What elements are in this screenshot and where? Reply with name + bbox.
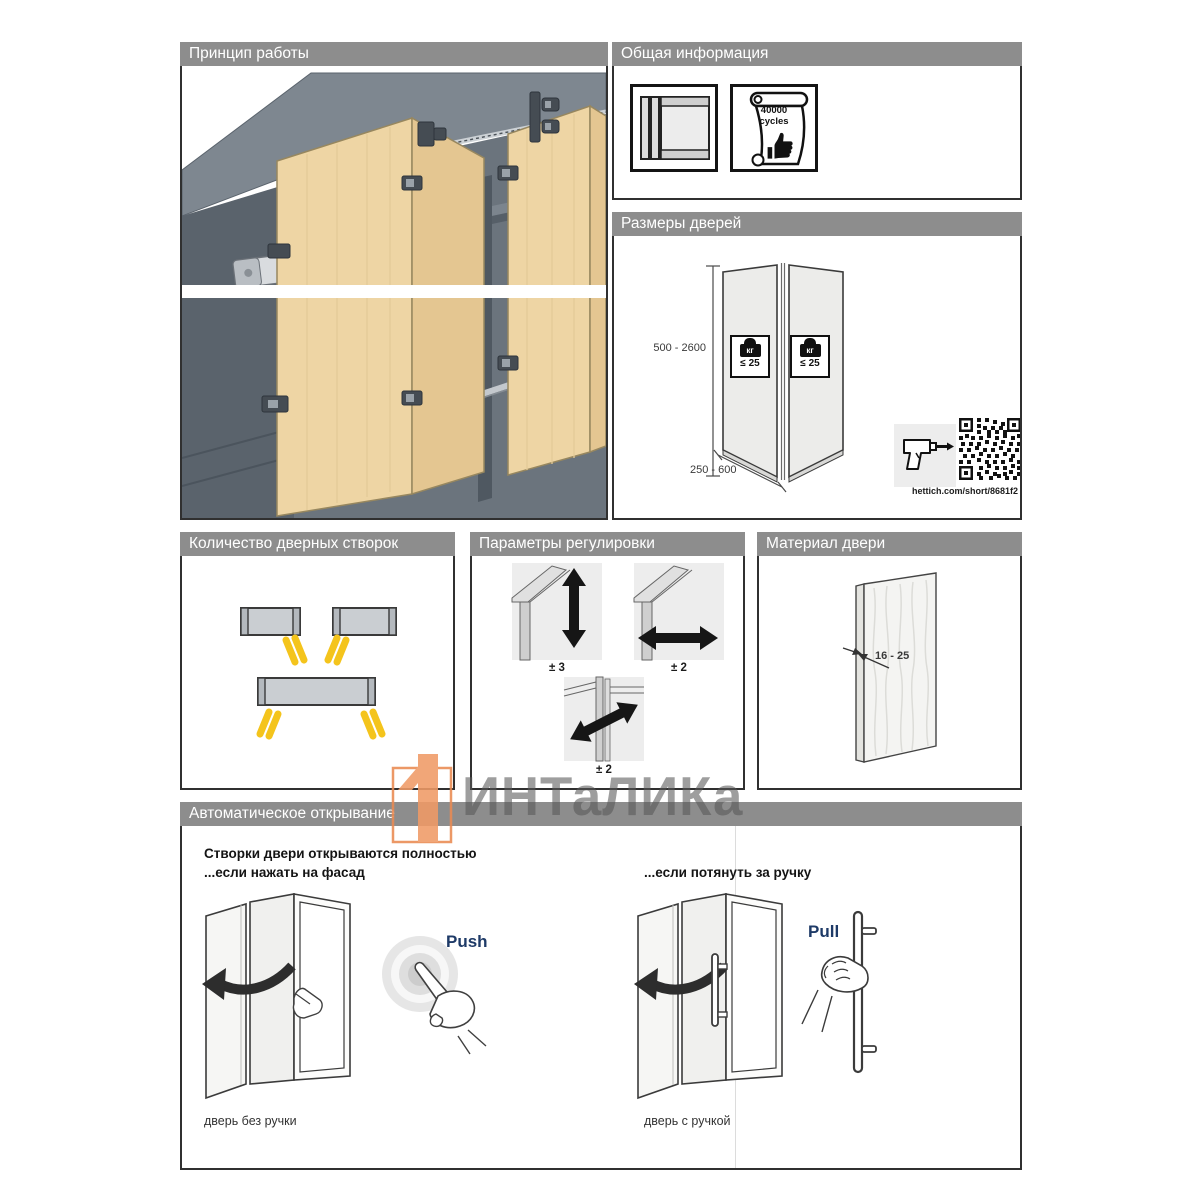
headline-line: Створки двери открываются полностью <box>204 844 477 863</box>
panel-adjust-body: ± 3 ± 2 ± 2 <box>470 556 745 790</box>
pull-gesture-icon <box>788 906 898 1086</box>
weight-unit: кг <box>746 346 753 355</box>
panel-count-header: Количество дверных створок <box>180 532 455 556</box>
door-weight-badge: кг ≤ 25 <box>790 335 830 378</box>
drill-icon <box>894 424 956 487</box>
cabinet-mechanism-illustration <box>182 66 606 518</box>
auto-open-headline: Створки двери открываются полностью ...е… <box>204 844 477 882</box>
panel-sizes-body: 500 - 2600 250 - 600 кг ≤ 25 кг ≤ 25 <box>612 236 1022 520</box>
weight-icon: кг <box>740 344 761 357</box>
panel-adjust-title: Параметры регулировки <box>479 535 655 552</box>
panel-auto-body: Створки двери открываются полностью ...е… <box>180 826 1022 1170</box>
panel-adjust-header: Параметры регулировки <box>470 532 745 556</box>
panel-auto-title: Автоматическое открывание <box>189 805 395 822</box>
panel-count-title: Количество дверных створок <box>189 535 398 552</box>
panel-sizes: Размеры дверей 500 - 2600 250 - 600 <box>612 212 1022 520</box>
pull-condition: ...если потянуть за ручку <box>644 863 811 882</box>
panel-sizes-header: Размеры дверей <box>612 212 1022 236</box>
height-dimension-line <box>706 266 720 476</box>
panel-principle-title: Принцип работы <box>189 45 309 62</box>
weight-unit: кг <box>806 346 813 355</box>
panel-adjust: Параметры регулировки <box>470 532 745 790</box>
caption-handle: дверь с ручкой <box>644 1114 731 1128</box>
door-leaf <box>590 106 606 452</box>
qr-code <box>959 418 1021 480</box>
push-condition: ...если нажать на фасад <box>204 863 477 882</box>
endurance-scroll-icon: 40000 cycles <box>730 84 818 172</box>
door-weight-badge: кг ≤ 25 <box>730 335 770 378</box>
weight-limit: ≤ 25 <box>792 358 828 370</box>
watermark-text: ИНТаЛИКа <box>462 764 743 828</box>
cycles-unit: cycles <box>733 117 815 128</box>
horizontal-adjustment-diagram <box>634 563 724 660</box>
panel-principle: Принцип работы <box>180 42 608 520</box>
push-label: Push <box>446 932 488 952</box>
panel-general-body: 40000 cycles <box>612 66 1022 200</box>
intalika-logo-icon <box>390 752 460 846</box>
door-leaf <box>412 118 484 494</box>
panel-material-body: 16 - 25 <box>757 556 1022 790</box>
panel-principle-body <box>180 66 608 520</box>
cycles-label: 40000 cycles <box>733 106 815 128</box>
door-thickness-range: 16 - 25 <box>875 650 909 662</box>
panel-material: Материал двери 16 - 25 <box>757 532 1022 790</box>
depth-adjustment-diagram <box>564 677 644 761</box>
pull-label: Pull <box>808 922 839 942</box>
panel-material-title: Материал двери <box>766 535 885 552</box>
weight-limit: ≤ 25 <box>732 358 768 370</box>
door-leaf <box>277 118 412 516</box>
panel-general-title: Общая информация <box>621 45 768 62</box>
vertical-adjust-value: ± 3 <box>512 662 602 674</box>
panel-auto: Автоматическое открывание Створки двери … <box>180 802 1022 1170</box>
push-gesture-icon <box>380 918 510 1058</box>
qr-short-link: hettich.com/short/8681f2 <box>866 486 1018 496</box>
weight-icon: кг <box>800 344 821 357</box>
panel-general-header: Общая информация <box>612 42 1022 66</box>
caption-no-handle: дверь без ручки <box>204 1114 297 1128</box>
push-cabinet-illustration <box>196 888 396 1108</box>
panel-general: Общая информация 40000 <box>612 42 1022 200</box>
panel-material-header: Материал двери <box>757 532 1022 556</box>
folding-door-icon <box>630 84 718 172</box>
door-height-range: 500 - 2600 <box>628 342 706 354</box>
door-width-range: 250 - 600 <box>690 464 736 476</box>
panel-sizes-title: Размеры дверей <box>621 215 741 232</box>
panel-principle-header: Принцип работы <box>180 42 608 66</box>
door-material-illustration <box>759 556 1020 788</box>
horizontal-adjust-value: ± 2 <box>634 662 724 674</box>
catalog-page: { "colors": { "header_bg": "#8D8D8D", "a… <box>0 0 1200 1200</box>
vertical-adjustment-diagram <box>512 563 602 660</box>
